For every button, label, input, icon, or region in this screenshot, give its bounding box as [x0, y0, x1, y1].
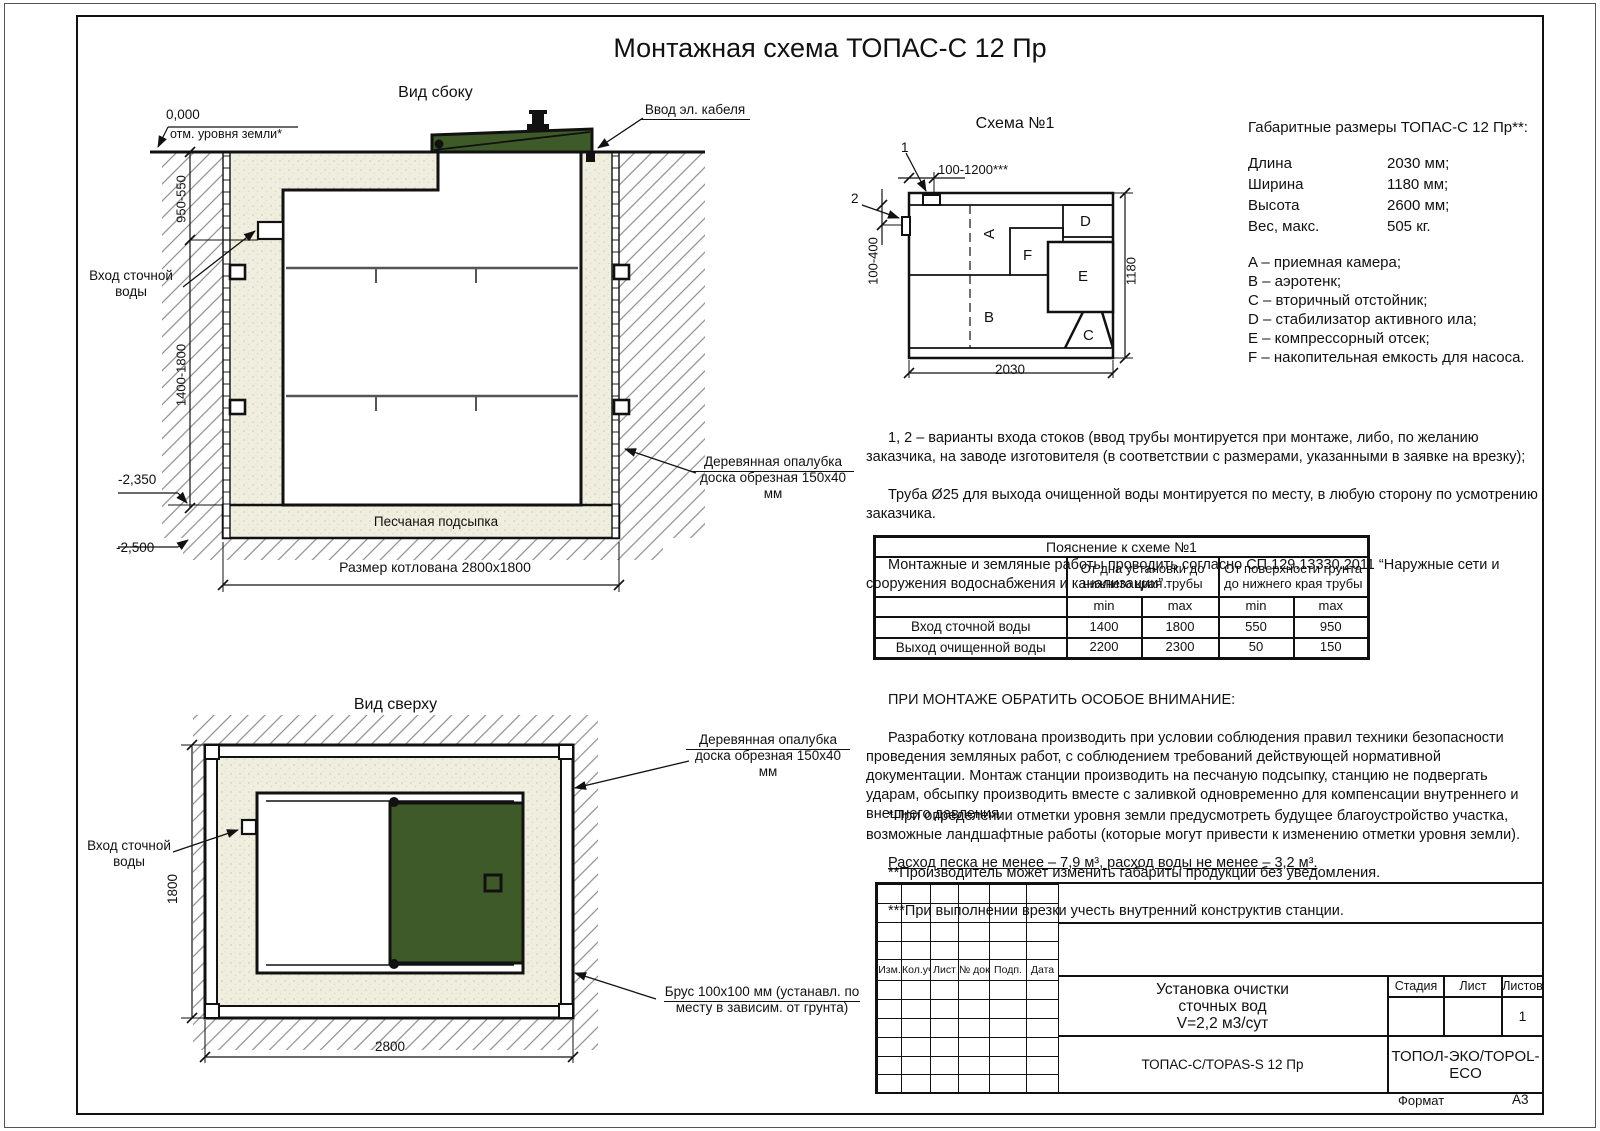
cell-value: 950: [1294, 617, 1369, 638]
table-min-header: min: [1067, 597, 1142, 617]
revision-header-row: Изм. Кол.уч. Лист № док. Подп. Дата: [878, 960, 1059, 981]
rev-col: Дата: [1027, 960, 1059, 981]
rev-col: Подп.: [990, 960, 1027, 981]
spec-value: 2600 мм;: [1387, 197, 1449, 215]
beam-label: Брус 100х100 мм (устанавл. по месту в за…: [658, 984, 866, 1016]
attention-heading: ПРИ МОНТАЖЕ ОБРАТИТЬ ОСОБОЕ ВНИМАНИЕ:: [866, 691, 1542, 710]
sheet-header: Лист: [1445, 975, 1501, 996]
table-min-header: min: [1219, 597, 1294, 617]
spec-key: Вес, макс.: [1248, 218, 1319, 236]
top-formwork-label: Деревянная опалубка доска обрезная 150х4…: [686, 732, 850, 780]
lid-hinge-dot: [389, 959, 399, 969]
cell-value: 1800: [1142, 617, 1219, 638]
table-corner-cell: [875, 557, 1067, 597]
legend-item: B – аэротенк;: [1248, 273, 1341, 291]
legend-item: F – накопительная емкость для насоса.: [1248, 349, 1525, 367]
dim-1800: 1800: [165, 874, 181, 904]
tank-body-side: [283, 152, 581, 505]
spec-key: Ширина: [1248, 176, 1303, 194]
note-variants: 1, 2 – варианты входа стоков (ввод трубы…: [866, 429, 1542, 467]
spec-value: 1180 мм;: [1387, 176, 1448, 194]
zero-level-caption: отм. уровня земли*: [170, 127, 282, 142]
green-lid-side: [432, 129, 592, 152]
mark-minus-2350: -2,350: [118, 472, 156, 488]
cable-entry-point: [586, 153, 595, 162]
inlet-pipe-side: [258, 222, 283, 239]
spec-key: Длина: [1248, 155, 1292, 173]
legend-item: E – компрессорный отсек;: [1248, 330, 1430, 348]
inlet-pipe-top: [242, 820, 256, 834]
cell-value: 50: [1219, 638, 1294, 659]
sand-consumption-note: Расход песка не менее – 7,9 м³, расход в…: [888, 855, 1448, 872]
page-title: Монтажная схема ТОПАС-С 12 Пр: [560, 33, 1100, 65]
stamp-divider: [1058, 922, 1542, 924]
sand-bedding-label: Песчаная подсыпка: [346, 514, 526, 530]
sheets-count: 1: [1503, 996, 1542, 1035]
format-value: А3: [1512, 1092, 1529, 1108]
compartment-A: A: [981, 229, 999, 239]
top-inlet-label: Вход сточной воды: [86, 838, 172, 870]
zero-level-mark: 0,000: [166, 107, 200, 123]
cell-value: 2200: [1067, 638, 1142, 659]
top-view-drawing: [85, 690, 725, 1080]
model-designation: ТОПАС-С/TOPAS-S 12 Пр: [1058, 1037, 1387, 1092]
schema-marker-1: 1: [901, 140, 909, 156]
schema-inlet-1: [923, 195, 940, 205]
company-name: ТОПОЛ-ЭКО/TOPOL-ECO: [1389, 1037, 1542, 1092]
side-formwork-label: Деревянная опалубка доска обрезная 150х4…: [692, 454, 854, 502]
note-pipe: Труба Ø25 для выхода очищенной воды монт…: [866, 486, 1542, 524]
specs-title: Габаритные размеры ТОПАС-С 12 Пр**:: [1248, 119, 1528, 137]
schema-dim-left: 100-400: [865, 237, 880, 285]
pit-size-label: Размер котлована 2800х1800: [320, 559, 550, 576]
cable-entry-label: Ввод эл. кабеля: [640, 102, 750, 120]
mark-minus-2500: -2,500: [116, 540, 154, 556]
document-title: Установка очистки сточных вод V=2,2 м3/с…: [1058, 975, 1387, 1037]
schema-dim-bottom: 2030: [970, 362, 1050, 378]
sheets-header: Листов: [1503, 975, 1542, 996]
table-group2-header: От поверхности грунта до нижнего края тр…: [1219, 557, 1369, 597]
row-label: Выход очищенной воды: [875, 638, 1067, 659]
drawing-sheet: Монтажная схема ТОПАС-С 12 Пр: [0, 0, 1600, 1131]
spec-value: 2030 мм;: [1387, 155, 1449, 173]
format-label: Формат: [1398, 1093, 1444, 1108]
revision-table: Изм. Кол.уч. Лист № док. Подп. Дата: [877, 884, 1059, 1093]
rev-col: № док.: [959, 960, 990, 981]
dim-2800: 2800: [350, 1039, 430, 1055]
cell-value: 550: [1219, 617, 1294, 638]
compartment-F: F: [1023, 247, 1032, 265]
compartment-C: C: [1083, 327, 1094, 345]
leader-shelf: [664, 1001, 860, 1002]
footnote-1: *При определении отметки уровня земли пр…: [866, 807, 1542, 845]
side-view-label: Вид сбоку: [393, 84, 478, 103]
cell-value: 2300: [1142, 638, 1219, 659]
vent-cap-icon: [527, 110, 549, 130]
side-inlet-label: Вход сточной воды: [83, 268, 179, 300]
rev-col: Изм.: [878, 960, 902, 981]
table-max-header: max: [1294, 597, 1369, 617]
dim-950-550: 950-550: [173, 175, 188, 223]
green-lid-top: [390, 803, 523, 963]
compartment-E: E: [1078, 268, 1088, 286]
cell-value: 1400: [1067, 617, 1142, 638]
dim-1400-1800: 1400-1800: [173, 344, 188, 406]
leader-shelf: [692, 471, 854, 472]
legend-item: C – вторичный отстойник;: [1248, 292, 1427, 310]
rev-col: Лист: [931, 960, 959, 981]
compartment-B: B: [984, 309, 994, 327]
table-title: Пояснение к схеме №1: [875, 537, 1369, 557]
lid-hinge-dot: [389, 797, 399, 807]
spec-key: Высота: [1248, 197, 1300, 215]
row-label: Вход сточной воды: [875, 617, 1067, 638]
explanation-table: Пояснение к схеме №1 От дна установки до…: [873, 535, 1370, 660]
schema-marker-2: 2: [851, 191, 859, 207]
table-group1-header: От дна установки до нижнего края трубы: [1067, 557, 1219, 597]
table-max-header: max: [1142, 597, 1219, 617]
spec-value: 505 кг.: [1387, 218, 1431, 236]
schema-inlet-2: [902, 217, 910, 235]
schema-title: Схема №1: [940, 115, 1090, 134]
leader-shelf: [686, 749, 850, 750]
table-row: Выход очищенной воды 2200 2300 50 150: [875, 638, 1369, 659]
schema-dim-right: 1180: [1123, 257, 1138, 285]
legend-item: A – приемная камера;: [1248, 254, 1401, 272]
cell-value: 150: [1294, 638, 1369, 659]
compartment-D: D: [1080, 213, 1091, 231]
stage-header: Стадия: [1389, 975, 1443, 996]
top-view-label: Вид сверху: [348, 696, 443, 715]
legend-item: D – стабилизатор активного ила;: [1248, 311, 1477, 329]
rev-col: Кол.уч.: [902, 960, 931, 981]
schema-dim-top: 100-1200***: [938, 162, 1008, 177]
table-row: Вход сточной воды 1400 1800 550 950: [875, 617, 1369, 638]
title-block: Изм. Кол.уч. Лист № док. Подп. Дата Уста…: [875, 882, 1544, 1094]
table-empty-cell: [875, 597, 1067, 617]
